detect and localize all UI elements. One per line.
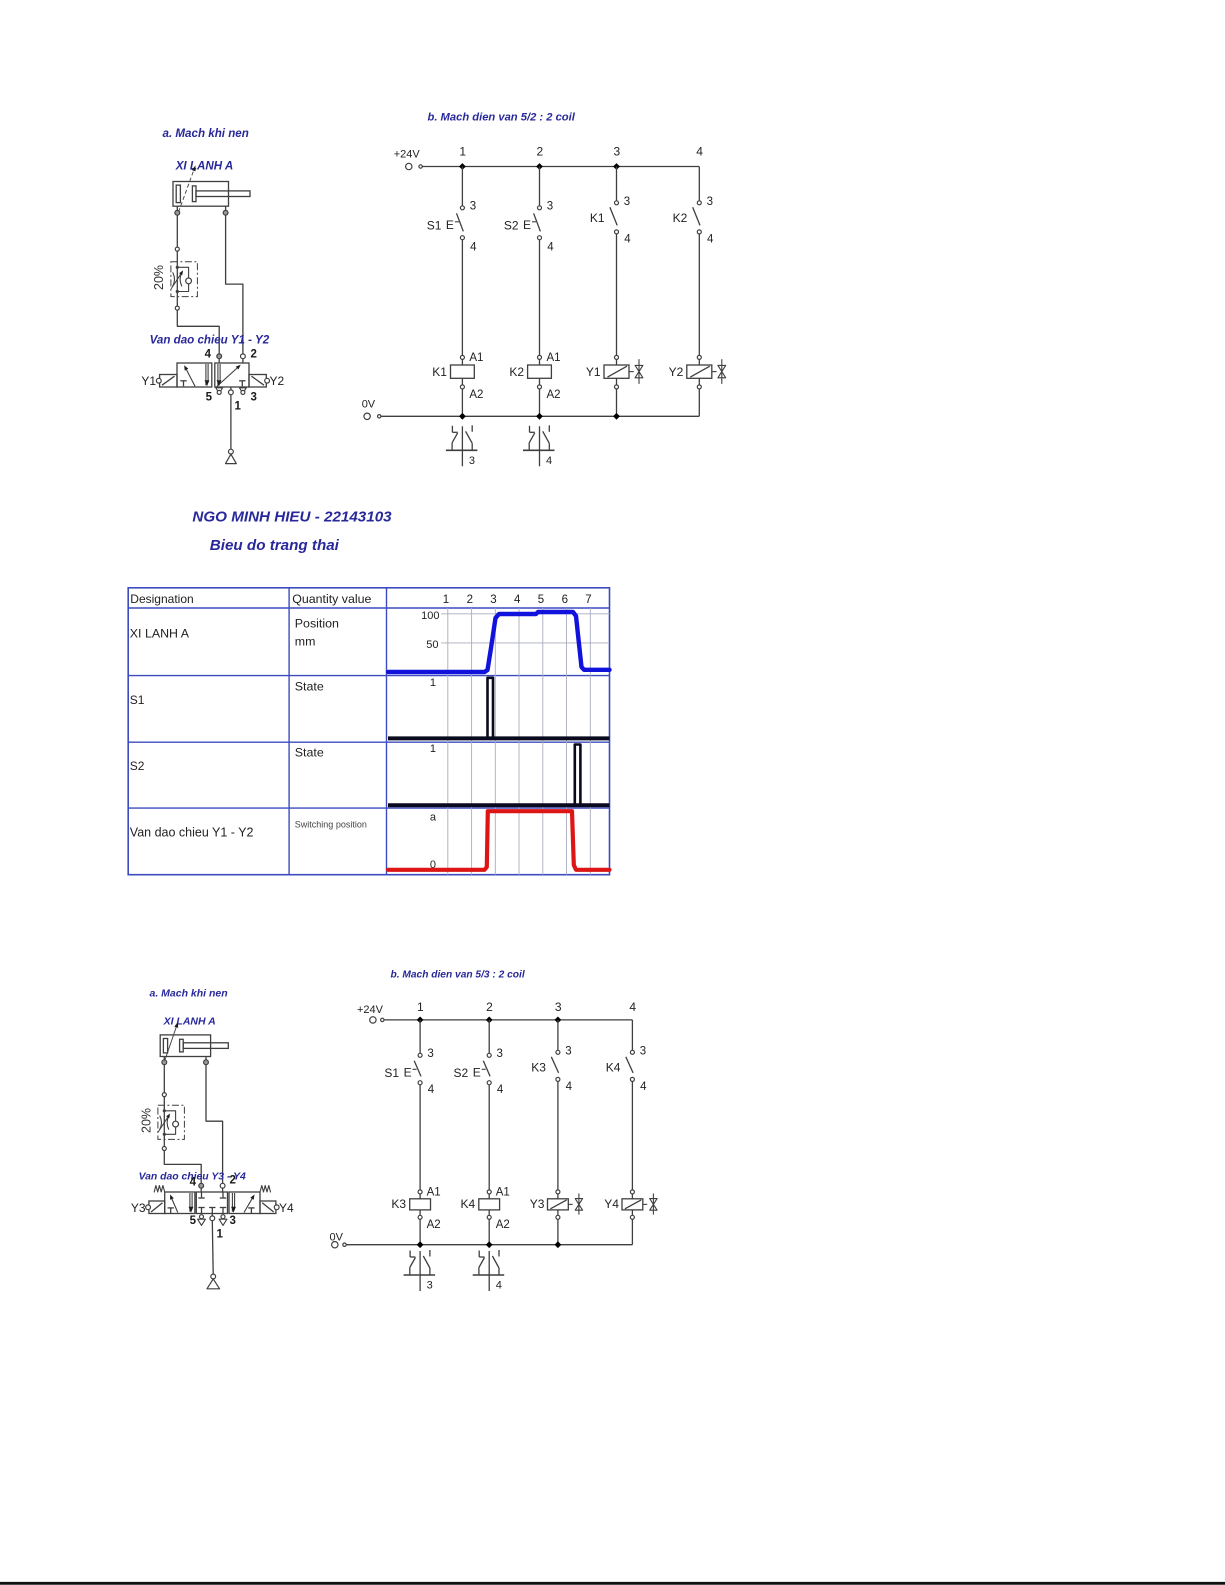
- svg-text:a: a: [430, 812, 437, 824]
- svg-text:Y3: Y3: [530, 1197, 545, 1211]
- svg-text:1: 1: [235, 401, 242, 413]
- svg-text:a. Mach khi nen: a. Mach khi nen: [163, 127, 249, 140]
- svg-text:S1: S1: [384, 1066, 399, 1080]
- svg-text:XI LANH A: XI LANH A: [175, 159, 234, 172]
- svg-text:Y1: Y1: [586, 365, 601, 379]
- svg-text:7: 7: [585, 594, 591, 606]
- svg-text:3: 3: [251, 392, 257, 404]
- svg-text:1: 1: [417, 1000, 424, 1014]
- svg-text:A1: A1: [496, 1186, 510, 1198]
- svg-text:0V: 0V: [362, 398, 376, 410]
- svg-text:4: 4: [640, 1081, 647, 1093]
- svg-text:a. Mach khi nen: a. Mach khi nen: [150, 987, 228, 999]
- svg-text:5: 5: [190, 1215, 197, 1227]
- svg-text:1: 1: [459, 144, 466, 158]
- svg-text:A2: A2: [547, 389, 561, 401]
- svg-text:E: E: [404, 1065, 412, 1079]
- svg-text:4: 4: [566, 1081, 573, 1093]
- svg-text:Quantity value: Quantity value: [292, 592, 371, 606]
- svg-text:4: 4: [547, 242, 554, 254]
- svg-text:K2: K2: [673, 211, 688, 225]
- svg-text:XI LANH A: XI LANH A: [130, 627, 190, 641]
- svg-text:4: 4: [707, 233, 714, 245]
- svg-text:E: E: [523, 218, 531, 232]
- svg-text:Y4: Y4: [604, 1197, 619, 1211]
- svg-text:3: 3: [707, 196, 713, 208]
- svg-text:4: 4: [497, 1084, 504, 1096]
- svg-text:State: State: [295, 746, 324, 760]
- svg-text:A2: A2: [469, 389, 483, 401]
- svg-text:b. Mach dien van 5/3 : 2 coil: b. Mach dien van 5/3 : 2 coil: [391, 970, 525, 981]
- svg-text:4: 4: [205, 349, 212, 361]
- svg-text:2: 2: [536, 144, 543, 158]
- svg-text:E: E: [473, 1065, 481, 1079]
- svg-text:20%: 20%: [140, 1108, 154, 1133]
- svg-text:1: 1: [430, 743, 436, 755]
- svg-text:4: 4: [428, 1084, 435, 1096]
- svg-text:4: 4: [496, 1280, 502, 1292]
- svg-text:Y1: Y1: [141, 374, 156, 388]
- svg-text:4: 4: [470, 242, 477, 254]
- svg-text:5: 5: [538, 594, 544, 606]
- svg-text:+24V: +24V: [357, 1004, 384, 1016]
- svg-text:3: 3: [565, 1045, 571, 1057]
- svg-text:3: 3: [427, 1048, 433, 1060]
- svg-text:Position: Position: [295, 617, 339, 631]
- svg-text:3: 3: [427, 1280, 433, 1292]
- svg-text:mm: mm: [295, 635, 316, 649]
- svg-text:Y2: Y2: [270, 374, 285, 388]
- svg-text:K1: K1: [590, 211, 605, 225]
- svg-text:Y3: Y3: [131, 1201, 146, 1215]
- svg-text:A1: A1: [427, 1186, 441, 1198]
- svg-text:3: 3: [555, 1000, 562, 1014]
- svg-text:NGO MINH HIEU - 22143103: NGO MINH HIEU - 22143103: [192, 509, 392, 526]
- svg-text:b. Mach dien van 5/2 : 2 coil: b. Mach dien van 5/2 : 2 coil: [428, 112, 576, 124]
- svg-text:A1: A1: [547, 352, 561, 364]
- svg-text:3: 3: [640, 1045, 646, 1057]
- svg-text:2: 2: [230, 1175, 236, 1187]
- svg-text:3: 3: [469, 455, 475, 467]
- svg-text:3: 3: [470, 201, 476, 213]
- svg-text:Switching position: Switching position: [295, 820, 367, 830]
- svg-text:4: 4: [624, 233, 631, 245]
- svg-text:S2: S2: [454, 1066, 469, 1080]
- svg-text:2: 2: [486, 1000, 493, 1014]
- svg-text:A2: A2: [427, 1219, 441, 1231]
- svg-text:A2: A2: [496, 1219, 510, 1231]
- svg-text:K3: K3: [391, 1197, 406, 1211]
- svg-text:S2: S2: [504, 218, 519, 232]
- svg-text:5: 5: [206, 392, 213, 404]
- svg-text:3: 3: [490, 594, 496, 606]
- svg-text:100: 100: [421, 610, 439, 622]
- svg-text:Y4: Y4: [279, 1201, 294, 1215]
- svg-text:E: E: [446, 218, 454, 232]
- svg-text:XI LANH A: XI LANH A: [163, 1016, 216, 1028]
- svg-text:1: 1: [217, 1229, 224, 1241]
- svg-text:K4: K4: [461, 1197, 476, 1211]
- svg-text:6: 6: [562, 594, 568, 606]
- svg-text:4: 4: [696, 144, 703, 158]
- svg-text:1: 1: [443, 594, 449, 606]
- svg-text:50: 50: [426, 639, 438, 651]
- svg-text:K1: K1: [432, 365, 447, 379]
- svg-text:S1: S1: [130, 693, 145, 707]
- svg-text:K3: K3: [531, 1060, 546, 1074]
- svg-text:Designation: Designation: [130, 592, 193, 606]
- svg-text:2: 2: [251, 349, 257, 361]
- svg-text:State: State: [295, 680, 324, 694]
- svg-text:4: 4: [514, 594, 521, 606]
- svg-text:Bieu do trang thai: Bieu do trang thai: [210, 537, 340, 554]
- svg-text:S1: S1: [427, 218, 442, 232]
- svg-text:3: 3: [613, 144, 620, 158]
- svg-text:3: 3: [624, 196, 630, 208]
- svg-text:S2: S2: [130, 759, 145, 773]
- svg-text:4: 4: [546, 455, 552, 467]
- svg-text:4: 4: [190, 1177, 197, 1189]
- svg-text:20%: 20%: [152, 265, 166, 290]
- svg-text:A1: A1: [469, 352, 483, 364]
- svg-text:2: 2: [467, 594, 473, 606]
- svg-text:4: 4: [629, 1000, 636, 1014]
- svg-text:3: 3: [547, 201, 553, 213]
- svg-text:Van dao chieu Y1 - Y2: Van dao chieu Y1 - Y2: [150, 333, 270, 346]
- svg-text:3: 3: [230, 1215, 236, 1227]
- svg-text:Van dao chieu Y1 - Y2: Van dao chieu Y1 - Y2: [130, 826, 254, 840]
- svg-text:3: 3: [497, 1048, 503, 1060]
- svg-text:K4: K4: [606, 1060, 621, 1074]
- svg-text:+24V: +24V: [394, 148, 421, 160]
- svg-text:K2: K2: [509, 365, 524, 379]
- svg-text:1: 1: [430, 677, 436, 689]
- svg-text:Y2: Y2: [669, 365, 684, 379]
